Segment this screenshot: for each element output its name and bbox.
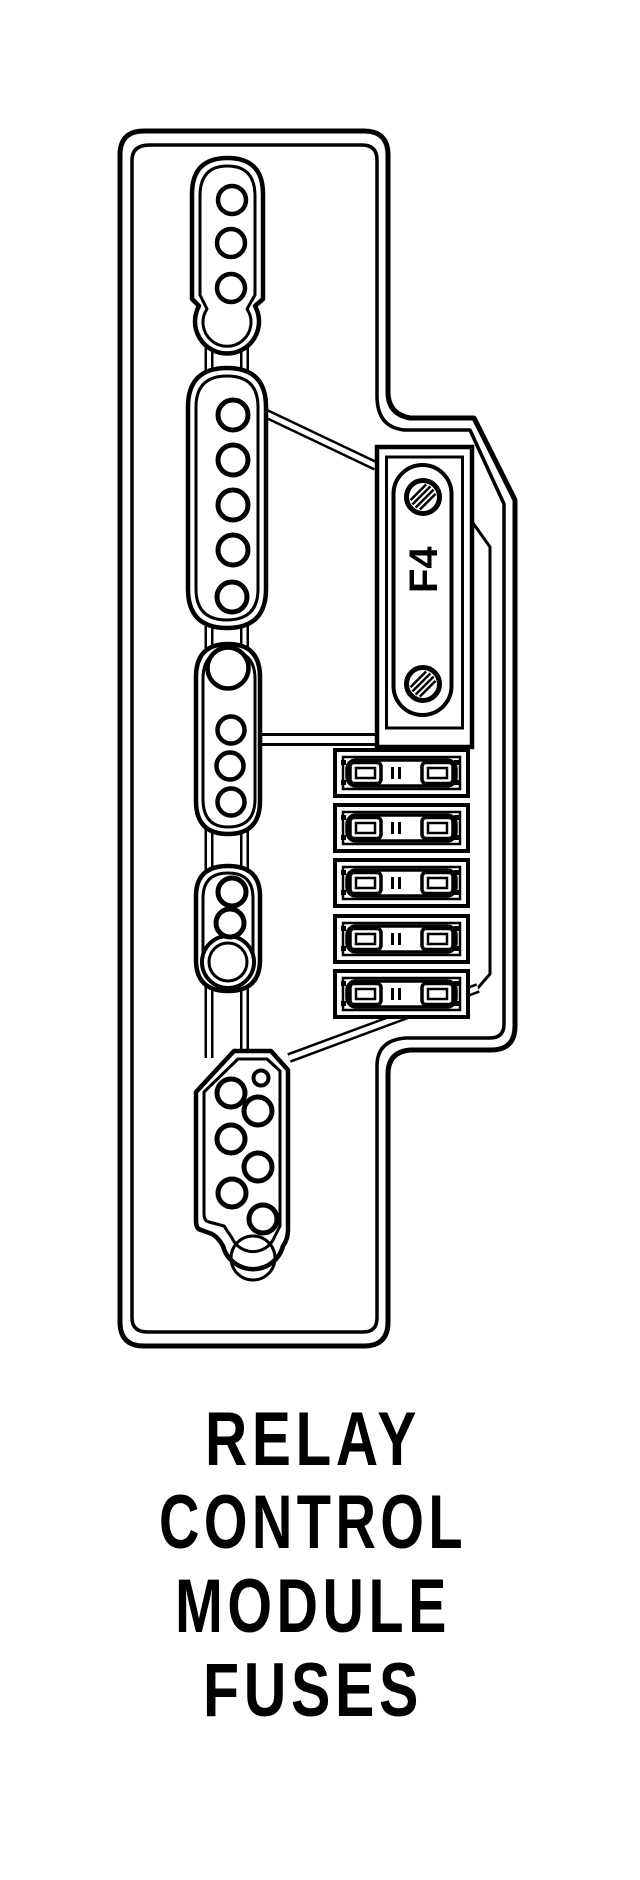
fuse-slot-5 <box>335 971 468 1017</box>
fuse-slot-2 <box>335 805 468 851</box>
screw-head <box>407 481 440 514</box>
pin-hole-small <box>254 1071 269 1086</box>
f4-fuse-holder: F4 <box>377 447 472 747</box>
pin-hole <box>218 789 245 816</box>
caption-line-3: MODULE <box>175 1564 451 1649</box>
pin-hole <box>217 274 245 302</box>
caption-line-2: CONTROL <box>159 1480 467 1565</box>
connector-2 <box>188 368 266 628</box>
pin-hole <box>216 909 244 937</box>
pin-hole <box>218 186 246 214</box>
pin-hole <box>218 1179 246 1207</box>
cavity-hole <box>208 648 249 689</box>
f4-label: F4 <box>402 546 446 593</box>
pin-hole <box>244 1153 272 1181</box>
pin-hole <box>218 878 246 906</box>
diagram-caption: RELAY CONTROL MODULE FUSES <box>159 1397 467 1733</box>
pin-hole <box>249 1205 277 1233</box>
pin-hole <box>217 582 247 612</box>
pin-hole <box>217 753 244 780</box>
caption-line-4: FUSES <box>203 1648 423 1733</box>
relay-control-module-fuses-page: F4 RELAY CONTROL MODULE FUSES <box>0 0 640 1880</box>
pin-hole <box>218 400 248 430</box>
fuse-slot-4 <box>335 916 468 962</box>
pin-hole <box>218 445 248 475</box>
screw-head <box>407 668 440 701</box>
pin-hole <box>244 1097 272 1125</box>
relay-control-module-diagram: F4 RELAY CONTROL MODULE FUSES <box>0 0 640 1880</box>
connector-3 <box>196 644 260 834</box>
pin-hole <box>218 490 248 520</box>
fuse-slots <box>335 750 468 1017</box>
fuse-slot-3 <box>335 860 468 906</box>
connector-4 <box>196 866 260 991</box>
pin-hole <box>217 229 245 257</box>
pin-hole <box>217 1079 245 1107</box>
connector-1 <box>192 158 263 353</box>
pin-hole <box>218 535 248 565</box>
pin-hole <box>218 717 245 744</box>
fuse-slot-1 <box>335 750 468 796</box>
pin-hole <box>217 1125 245 1153</box>
caption-line-1: RELAY <box>205 1397 421 1482</box>
